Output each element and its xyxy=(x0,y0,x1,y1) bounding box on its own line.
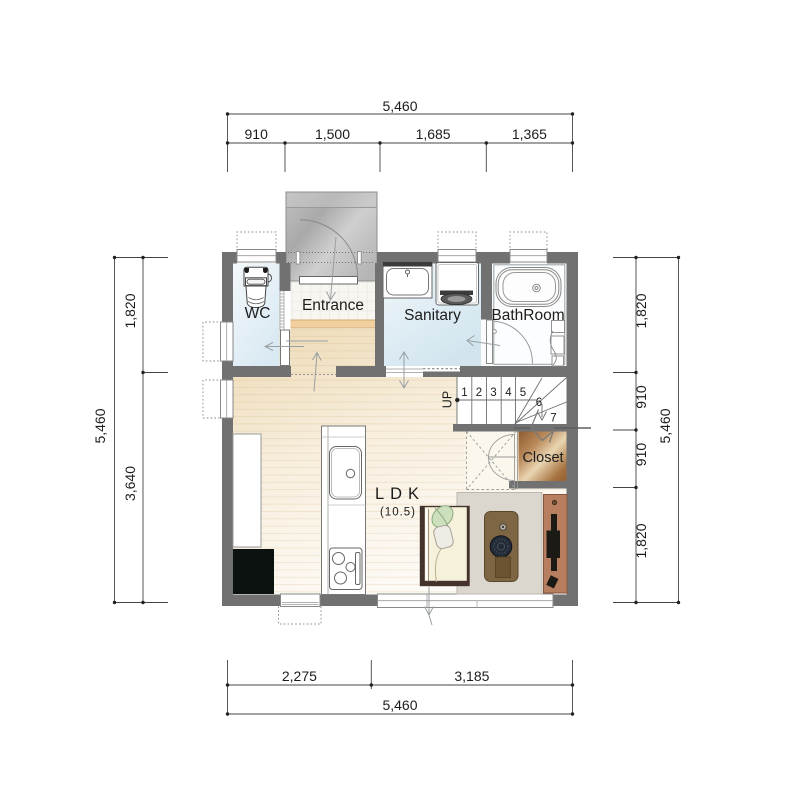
svg-text:5,460: 5,460 xyxy=(657,408,673,443)
svg-text:WC: WC xyxy=(245,305,271,322)
svg-text:Closet: Closet xyxy=(522,450,563,466)
svg-text:6: 6 xyxy=(536,397,542,409)
svg-text:1,820: 1,820 xyxy=(633,523,649,558)
svg-text:BathRoom: BathRoom xyxy=(491,307,564,324)
svg-text:LDK: LDK xyxy=(375,485,425,503)
svg-text:1,820: 1,820 xyxy=(633,293,649,328)
svg-text:(10.5): (10.5) xyxy=(380,507,416,519)
svg-text:1,685: 1,685 xyxy=(416,126,451,142)
svg-text:5,460: 5,460 xyxy=(382,98,417,114)
svg-text:2: 2 xyxy=(476,387,482,399)
svg-text:3: 3 xyxy=(490,387,496,399)
svg-text:1,365: 1,365 xyxy=(512,126,547,142)
svg-text:1,820: 1,820 xyxy=(122,293,138,328)
svg-text:Sanitary: Sanitary xyxy=(404,307,461,324)
svg-text:1: 1 xyxy=(461,387,467,399)
svg-text:910: 910 xyxy=(245,126,269,142)
svg-text:UP: UP xyxy=(441,391,455,408)
svg-text:4: 4 xyxy=(505,387,512,399)
svg-text:Entrance: Entrance xyxy=(302,297,364,314)
svg-text:3,185: 3,185 xyxy=(454,668,489,684)
svg-text:2,275: 2,275 xyxy=(282,668,317,684)
svg-text:910: 910 xyxy=(633,443,649,467)
svg-text:5: 5 xyxy=(520,387,526,399)
svg-text:7: 7 xyxy=(550,413,556,425)
svg-text:5,460: 5,460 xyxy=(382,697,417,713)
svg-text:5,460: 5,460 xyxy=(92,408,108,443)
svg-text:3,640: 3,640 xyxy=(122,466,138,501)
svg-text:910: 910 xyxy=(633,385,649,409)
svg-text:1,500: 1,500 xyxy=(315,126,350,142)
